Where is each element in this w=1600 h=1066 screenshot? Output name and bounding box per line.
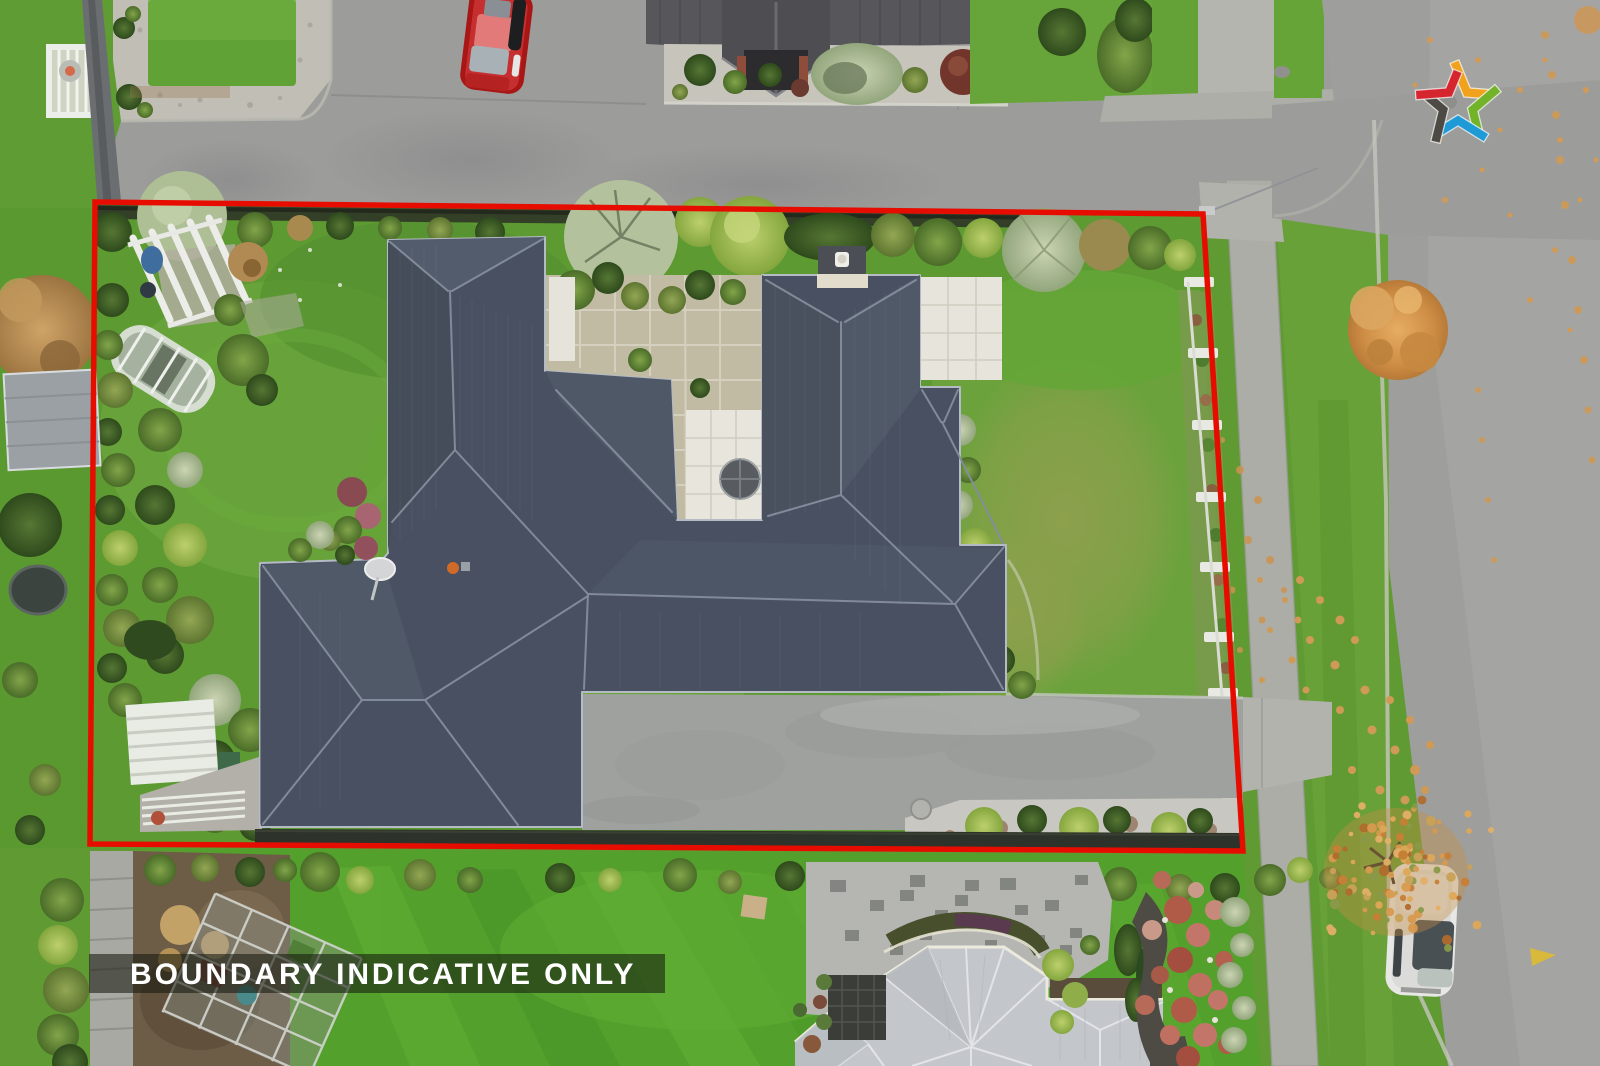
- svg-text:BOUNDARY INDICATIVE ONLY: BOUNDARY INDICATIVE ONLY: [130, 958, 636, 991]
